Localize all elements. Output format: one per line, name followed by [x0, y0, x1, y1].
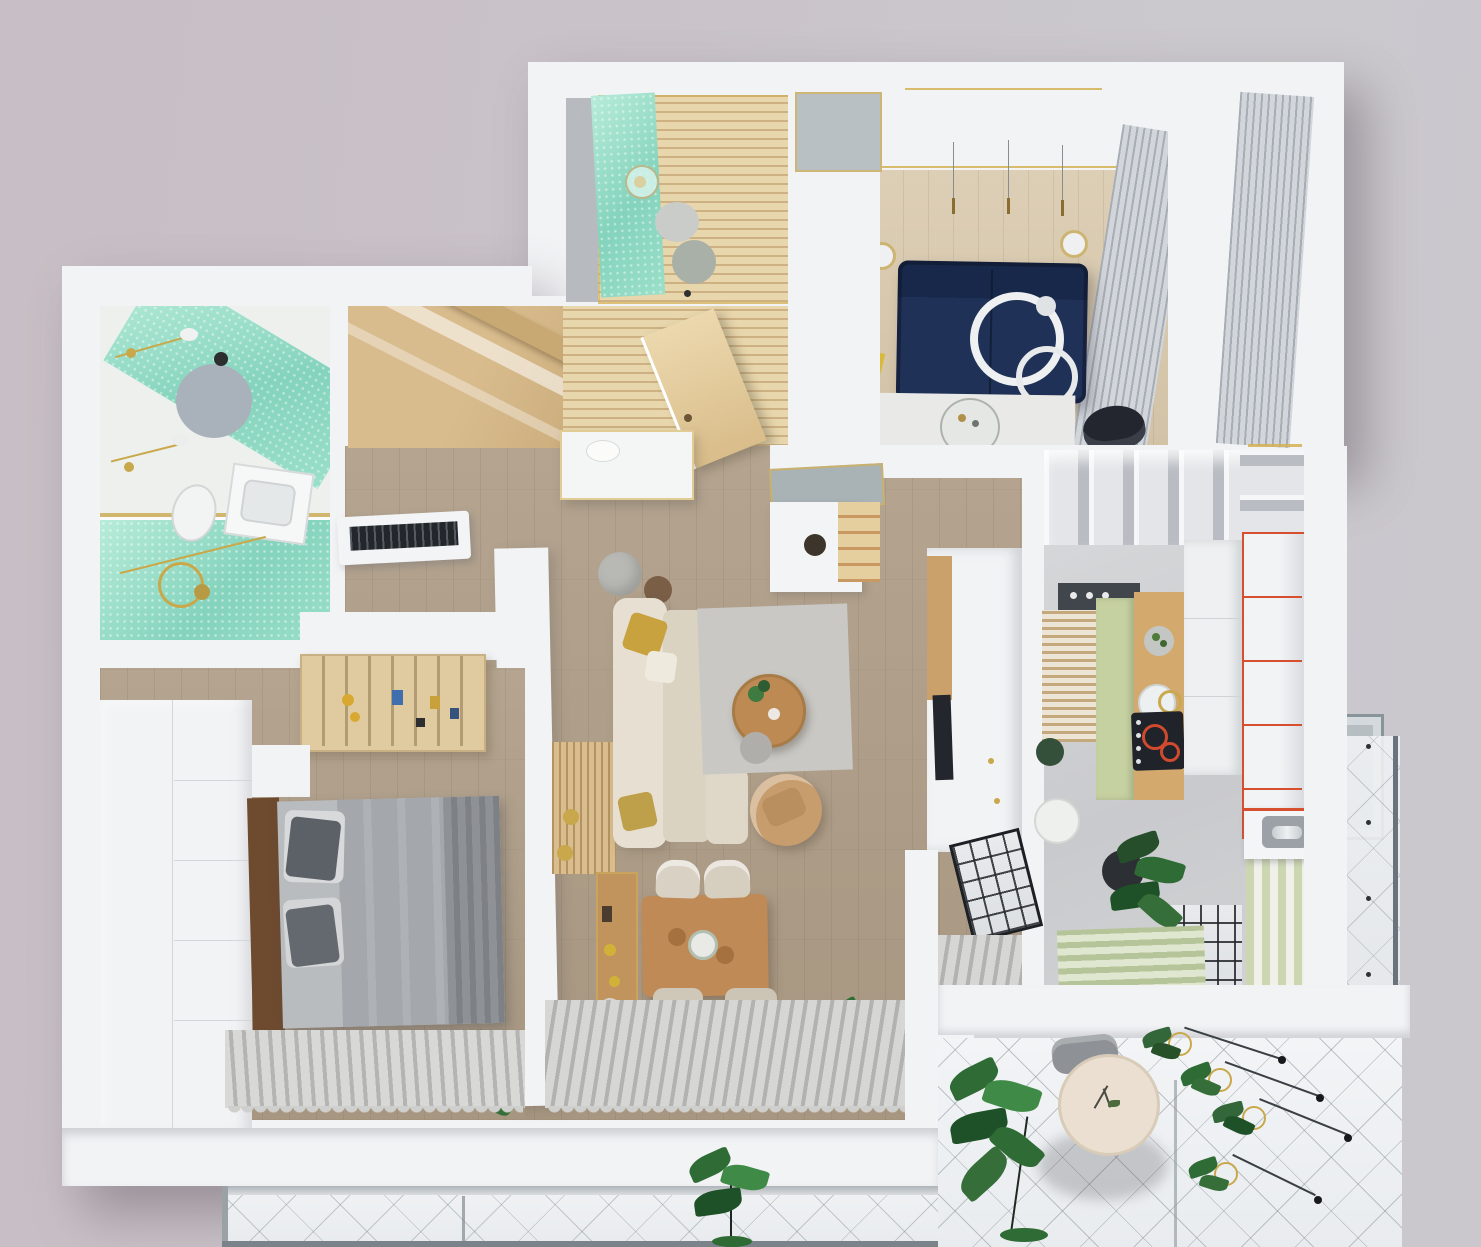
study-desk-gold-trim: [880, 166, 1148, 168]
kitchen-sage-slat-band: [1246, 858, 1306, 995]
overbed-cabinet: [300, 612, 522, 660]
table-decor-dot: [958, 414, 966, 422]
wc-toilet-lid: [655, 202, 699, 242]
decor-ball: [1036, 296, 1056, 316]
kitchen-mini-chair-green: [1036, 738, 1064, 766]
balcony-strip-joint: [462, 1196, 465, 1247]
bar-shelf-item-yellow: [604, 944, 616, 956]
kitchen-bowl: [1144, 626, 1174, 656]
entry-wardrobe-wood: [348, 306, 563, 448]
cooktop-knob: [1136, 746, 1141, 751]
entry-bench-hole: [804, 534, 826, 556]
study-desk-band: [878, 95, 1148, 170]
kitchen-cube-shelves-top: [1044, 450, 1270, 545]
bottom-outer-wall: [62, 1128, 940, 1186]
red-trim-shelf-line: [1242, 724, 1302, 726]
planter-stem: [1232, 1154, 1316, 1196]
cream-sofa-chaise: [706, 768, 748, 844]
tv-screen: [933, 695, 954, 781]
wc-teal-wall: [591, 92, 665, 297]
kitchen-cube-shelves-right: [1240, 450, 1304, 545]
tv-wall-wood: [927, 556, 952, 700]
balcony-strip-railing-top: [228, 1186, 942, 1195]
balcony-strip-floor: [222, 1186, 942, 1247]
cooktop-knob: [1136, 720, 1141, 725]
table-decor-dot: [972, 420, 979, 427]
pendant-light-icon: [952, 198, 955, 214]
bar-shelf-item-yellow: [609, 976, 620, 987]
gold-pillow: [617, 791, 659, 833]
plant-base: [712, 1236, 752, 1247]
kitchen-white-cabinets: [1184, 540, 1242, 775]
gold-fixture-dot: [126, 348, 136, 358]
planter-stem: [1225, 1061, 1320, 1097]
towel-end: [172, 434, 189, 446]
wardrobe-seam: [174, 940, 252, 941]
monstera-plant-bottom: [682, 1148, 782, 1247]
red-trim-shelf-line: [1242, 596, 1302, 598]
dining-centerpiece-flowers: [688, 930, 718, 960]
cooktop-knob: [1136, 733, 1141, 738]
glass-post-dot: [1366, 820, 1371, 825]
glass-post-dot: [1366, 744, 1371, 749]
side-pouf: [740, 732, 772, 764]
wall-sconce-icon: [1060, 230, 1088, 258]
hanging-planter: [1188, 1150, 1328, 1210]
towel-rail-icon: [111, 444, 179, 463]
entry-console: [560, 430, 694, 500]
dining-wood-plate: [668, 928, 686, 946]
glass-post-dot: [1366, 896, 1371, 901]
bedside-cabinet: [252, 745, 310, 797]
red-trim-shelf-line: [1242, 660, 1302, 662]
shelf-item-blue: [392, 690, 403, 705]
kitchen-green-cabinets: [1096, 598, 1134, 800]
kitchen-faucet: [1272, 826, 1302, 839]
rug-fringe: [548, 1106, 928, 1123]
pendant-light-icon: [1061, 200, 1064, 216]
red-trim-shelf-line: [1242, 788, 1302, 790]
shower-head-dot: [194, 584, 210, 600]
rug-fringe: [228, 1106, 523, 1123]
bed-throw: [443, 796, 505, 1024]
bar-shelf-item-dark: [602, 906, 612, 922]
towel-end: [180, 328, 198, 341]
bedroom-striped-rug: [225, 1030, 525, 1108]
right-outer-wall: [1304, 460, 1347, 1035]
dining-chair: [703, 859, 750, 899]
glass-post-dot: [1366, 972, 1371, 977]
console-vase: [586, 440, 620, 462]
white-pillow: [644, 650, 678, 684]
wc-pendant-bulb: [634, 176, 646, 188]
shelf-item-dark: [416, 718, 425, 727]
gold-fixture-dot: [124, 462, 134, 472]
hanging-planter: [1208, 1098, 1358, 1146]
plant-base: [1000, 1228, 1048, 1242]
bed: [247, 792, 508, 1034]
dining-right-wall: [905, 850, 938, 1125]
bathroom-sink-basin: [239, 479, 296, 528]
balcony-table-sprig-leaf: [1108, 1100, 1120, 1107]
study-curtain-gold-trim: [1248, 444, 1302, 447]
planter-stem: [1259, 1098, 1349, 1136]
pendant-light-icon: [953, 142, 954, 206]
shelf-item-yellow: [350, 712, 360, 722]
pendant-light-icon: [1007, 198, 1010, 214]
dining-striped-rug: [545, 1000, 930, 1108]
dining-chair: [655, 859, 700, 899]
coffee-table-vase: [768, 708, 780, 720]
wardrobe-seam: [174, 860, 252, 861]
bed-pillow-dark: [285, 816, 341, 881]
gray-pouf: [598, 552, 642, 596]
apartment-floorplan-3d-render: [0, 0, 1481, 1247]
pendant-light-icon: [1062, 145, 1063, 207]
study-window-gold-trim: [905, 88, 1102, 90]
study-wardrobe-top: [795, 92, 882, 172]
pendant-light-icon: [1008, 140, 1009, 206]
shelf-item-navy: [450, 708, 459, 719]
planter-end-dot: [1314, 1196, 1322, 1204]
monstera-plant-balcony: [940, 1056, 1065, 1246]
divider-knob-gold: [557, 845, 573, 861]
kitchen-mini-table: [1034, 798, 1080, 844]
divider-knob-gold: [563, 809, 579, 825]
kitchen-cabinet-seam: [1184, 618, 1242, 619]
shelf-item-yellow: [342, 694, 354, 706]
shelf-dividers: [302, 656, 480, 746]
plant-leaf: [693, 1187, 744, 1217]
wardrobe-seam: [174, 780, 252, 781]
shelf-item-gold: [430, 696, 440, 709]
door-handle-icon: [684, 414, 692, 422]
kitchen-bowl-greens: [1152, 633, 1160, 641]
kitchen-dish-dot: [1086, 592, 1093, 599]
coffee-table-plant: [758, 680, 770, 692]
planter-end-dot: [1344, 1134, 1352, 1142]
bathroom-round-rug: [176, 364, 252, 438]
black-fixture-dot: [214, 352, 228, 366]
bed-duvet: [337, 797, 453, 1027]
bathroom-floor: [100, 306, 330, 648]
balcony-glass-joint: [1174, 1080, 1177, 1247]
kitchen-bowl-greens: [1160, 640, 1167, 647]
tv-wall-handle-gold: [994, 798, 1000, 804]
planter-stem: [1184, 1027, 1280, 1060]
kitchen-window-blinds: [1042, 610, 1096, 742]
wc-drain-dot: [684, 290, 691, 297]
dining-wood-plate: [716, 946, 734, 964]
red-trim-shelves: [1242, 532, 1306, 839]
tv-wall-handle-gold: [988, 758, 994, 764]
kitchen-cabinet-seam: [1184, 696, 1242, 697]
wardrobe-seam: [172, 700, 173, 1145]
bed-pillow-dark: [285, 904, 340, 968]
wardrobe-seam: [174, 1020, 252, 1021]
kitchen-dish-dot: [1070, 592, 1077, 599]
cooktop-red-ring: [1160, 742, 1180, 762]
entry-bench-cubbies: [838, 502, 880, 582]
balcony-strip-left-frame: [222, 1186, 228, 1247]
wc-toilet-bowl: [672, 240, 716, 284]
cooktop-knob: [1136, 759, 1141, 764]
